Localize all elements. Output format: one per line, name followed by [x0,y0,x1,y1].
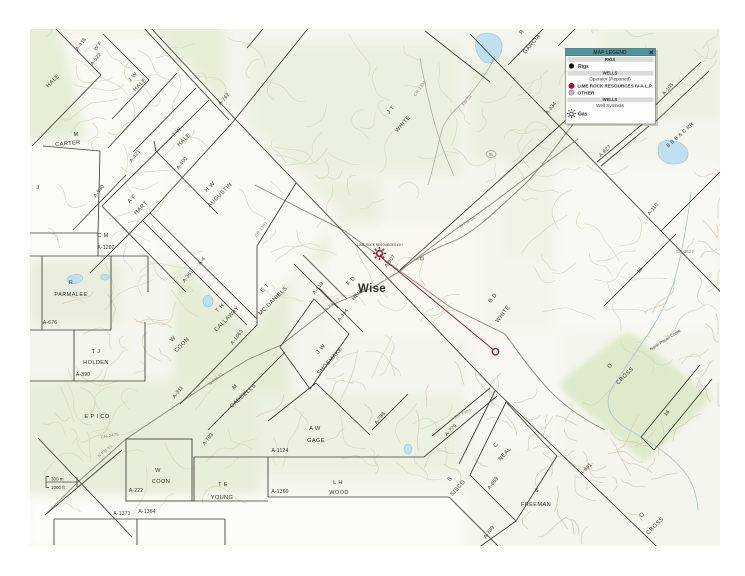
svg-text:A-1297: A-1297 [97,245,114,251]
svg-text:Operator (Reported): Operator (Reported) [589,77,631,82]
svg-text:M: M [73,132,78,138]
svg-text:1000 ft: 1000 ft [51,485,66,490]
svg-text:WELLS: WELLS [603,71,618,76]
svg-text:A-1360: A-1360 [271,489,288,495]
svg-text:Well Symbols: Well Symbols [596,103,624,108]
svg-text:COON: COON [152,479,170,485]
svg-text:Wise: Wise [358,283,386,295]
svg-text:LIME ROCK RESOURCES #1H: LIME ROCK RESOURCES #1H [357,243,403,247]
svg-text:A-1371: A-1371 [113,511,130,517]
svg-text:OTHER: OTHER [578,91,595,97]
svg-text:A-390: A-390 [76,372,90,378]
svg-text:WELLS: WELLS [603,97,618,102]
svg-text:51: 51 [489,153,493,157]
svg-text:W: W [155,468,161,474]
svg-text:A-1124: A-1124 [272,448,289,454]
svg-text:YOUNG: YOUNG [211,495,234,501]
svg-text:T E: T E [218,482,228,488]
svg-text:Gas: Gas [578,112,588,118]
svg-text:T J: T J [92,349,101,355]
svg-text:R: R [69,280,73,286]
svg-text:WOOD: WOOD [329,490,349,496]
svg-text:J: J [36,185,39,191]
svg-text:A-676: A-676 [43,320,57,326]
svg-text:PARMALEE: PARMALEE [54,292,87,298]
svg-text:FREEMAN: FREEMAN [521,502,551,508]
svg-text:A-1364: A-1364 [138,509,155,515]
svg-text:LIME ROCK RESOURCES IV-A L.P.: LIME ROCK RESOURCES IV-A L.P. [578,84,653,89]
svg-text:CP-3622: CP-3622 [676,249,694,254]
svg-text:L H: L H [333,480,343,486]
svg-text:RIGS: RIGS [605,57,615,62]
svg-text:S: S [535,488,539,494]
svg-text:MAP LEGEND: MAP LEGEND [593,50,627,56]
svg-text:300 m: 300 m [51,477,64,482]
svg-text:E P I CO: E P I CO [84,414,109,420]
svg-text:Rigs: Rigs [578,64,589,70]
svg-text:HOLDEN: HOLDEN [83,360,109,366]
svg-text:C M: C M [97,233,108,239]
svg-text:A-222: A-222 [129,488,143,494]
svg-text:GAGE: GAGE [307,438,325,444]
svg-text:A W: A W [309,426,321,432]
